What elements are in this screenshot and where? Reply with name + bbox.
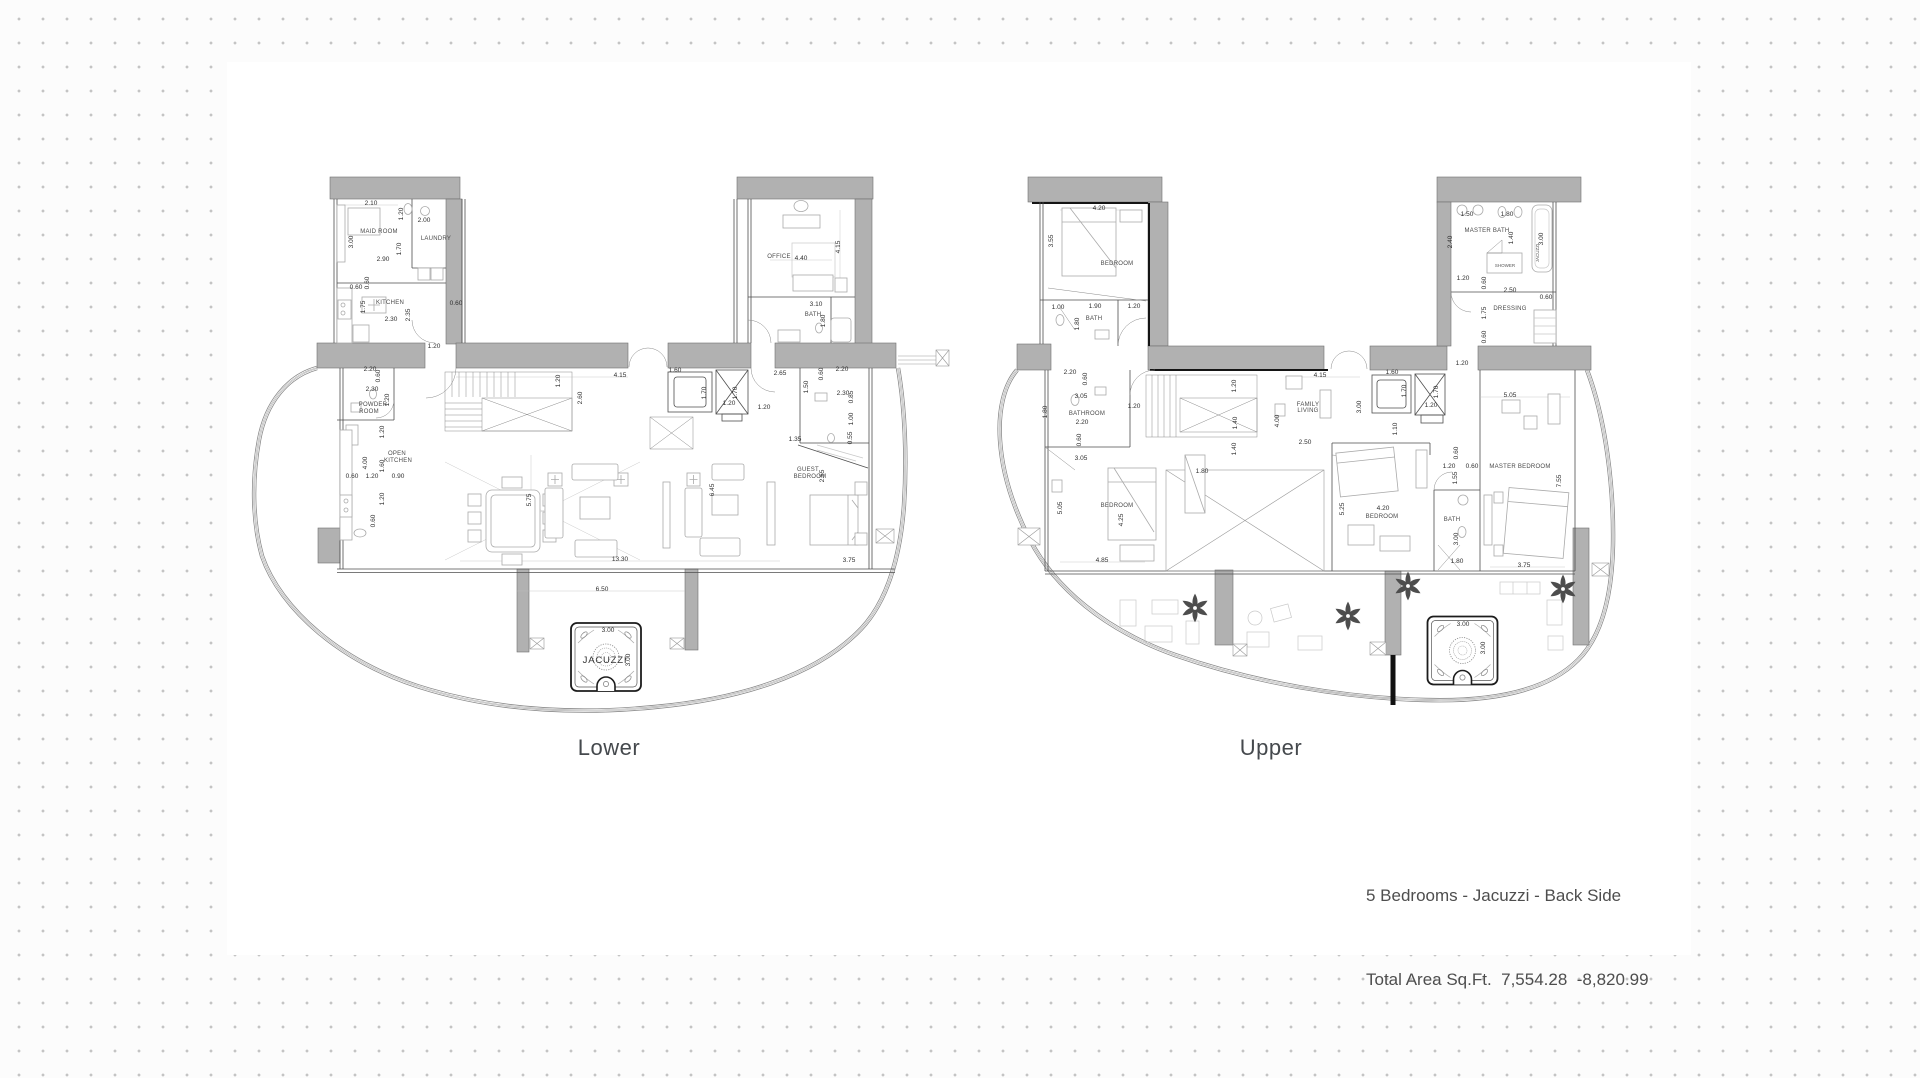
room-label: SHOWER	[1495, 263, 1516, 268]
dimension-label: 1.40	[1231, 442, 1238, 455]
dimension-label: 6.50	[596, 586, 609, 593]
dimension-label: 4.15	[614, 372, 627, 379]
dimension-label: 0.60	[350, 284, 363, 291]
dimension-label: 0.60	[1453, 446, 1460, 459]
caption-area: Total Area Sq.Ft. 7,554.28 -8,820.99	[1366, 966, 1649, 994]
room-label: OFFICE	[767, 254, 791, 260]
room-label: BATH	[1086, 316, 1103, 322]
dimension-label: 1.20	[428, 343, 441, 350]
dimension-label: 1.70	[396, 242, 403, 255]
dimension-label: 1.70	[732, 386, 739, 399]
dimension-label: 1.20	[723, 400, 736, 407]
dimension-label: 1.20	[758, 404, 771, 411]
dimension-label: 1.20	[1128, 403, 1141, 410]
dimension-label: 3.05	[1075, 455, 1088, 462]
plant-icon	[1334, 602, 1362, 631]
room-label: BEDROOM	[1101, 261, 1134, 267]
dimension-label: 3.75	[1518, 562, 1531, 569]
dimension-label: 1.00	[1052, 304, 1065, 311]
dimension-label: 1.70	[1401, 384, 1408, 397]
dimension-label: 1.80	[1196, 468, 1209, 475]
dimension-label: 3.05	[1075, 393, 1088, 400]
dimension-label: 4.25	[1118, 513, 1125, 526]
dimension-label: 1.50	[1461, 211, 1474, 218]
floor-plan-upper: 4.203.55BEDROOM1.001.901.20BATH1.801.501…	[985, 165, 1630, 780]
dimension-label: 3.00	[602, 627, 615, 634]
dimension-label: 0.90	[392, 473, 405, 480]
dimension-label: 4.15	[1314, 372, 1327, 379]
dimension-label: 5.75	[526, 493, 533, 506]
dimension-label: 2.10	[365, 200, 378, 207]
dimension-label: 1.20	[1456, 360, 1469, 367]
dimension-label: 3.55	[1048, 234, 1055, 247]
dimension-label: 3.75	[843, 557, 856, 564]
dimension-label: 1.20	[398, 207, 405, 220]
room-label: OPEN	[388, 451, 406, 457]
page-canvas: 2.101.202.003.00MAID ROOM1.70LAUNDRY2.90…	[0, 0, 1920, 1078]
dimension-label: 1.50	[803, 380, 810, 393]
dimension-label: 4.00	[1274, 414, 1281, 427]
dimension-label: 2.60	[577, 391, 584, 404]
dimension-label: 4.20	[1093, 205, 1106, 212]
dimension-label: 2.20	[1064, 369, 1077, 376]
dimension-label: 1.20	[1425, 402, 1438, 409]
dimension-label: 1.60	[669, 367, 682, 374]
room-label: GUEST	[797, 467, 819, 473]
dimension-label: 4.85	[1096, 557, 1109, 564]
dimension-label: 1.10	[1392, 422, 1399, 435]
dimension-label: 6.45	[709, 483, 716, 496]
dimension-label: 0.60	[1481, 276, 1488, 289]
room-label: BEDROOM	[1101, 503, 1134, 509]
dimension-label: 1.20	[1128, 303, 1141, 310]
dimension-label: 2.00	[418, 217, 431, 224]
plan-caption: 5 Bedrooms - Jacuzzi - Back Side Total A…	[1366, 826, 1649, 1050]
room-label: ROOM	[359, 409, 379, 415]
dimension-label: 1.80	[820, 314, 827, 327]
dimension-label: 1.70	[1433, 385, 1440, 398]
dimension-label: 2.65	[774, 370, 787, 377]
dimension-label: 2.35	[405, 308, 412, 321]
dimension-label: 1.20	[1231, 379, 1238, 392]
dimension-label: 3.00	[1356, 400, 1363, 413]
dimension-label: 1.80	[1501, 211, 1514, 218]
dimension-label: 5.25	[1339, 502, 1346, 515]
dimension-label: 1.90	[1089, 303, 1102, 310]
dimension-label: 2.20	[1076, 419, 1089, 426]
dimension-label: 13.30	[612, 556, 629, 563]
dimension-label: 1.70	[701, 386, 708, 399]
dimension-label: 1.40	[1232, 416, 1239, 429]
room-label: KITCHEN	[376, 300, 404, 306]
dimension-label: 0.60	[375, 369, 382, 382]
dimension-label: 1.20	[379, 425, 386, 438]
dimension-label: 0.60	[1082, 372, 1089, 385]
dimension-label: 0.60	[370, 514, 377, 527]
dimension-label: 2.40	[1447, 235, 1454, 248]
dimension-label: 4.00	[362, 456, 369, 469]
dimension-label: 1.60	[379, 459, 386, 472]
dimension-label: 4.20	[1377, 505, 1390, 512]
room-label: MAID ROOM	[360, 229, 398, 235]
dimension-label: 1.55	[1452, 471, 1459, 484]
room-label: BATH	[805, 312, 822, 318]
caption-title: 5 Bedrooms - Jacuzzi - Back Side	[1366, 882, 1649, 910]
upper-floor-label: Upper	[1240, 735, 1302, 761]
dimension-label: 1.20	[1443, 463, 1456, 470]
dimension-label: 1.20	[555, 374, 562, 387]
room-label: LAUNDRY	[421, 236, 451, 242]
dimension-label: 1.20	[1457, 275, 1470, 282]
room-label: BATH	[1444, 517, 1461, 523]
walls-lower	[317, 177, 896, 652]
dimension-label: 0.60	[346, 473, 359, 480]
dimension-label: 1.00	[848, 412, 855, 425]
dimension-label: 3.00	[1453, 532, 1460, 545]
room-label: DRESSING	[1493, 306, 1526, 312]
dimension-label: 2.55	[819, 469, 826, 482]
dimension-label: 2.50	[1504, 287, 1517, 294]
dimension-label: 2.30	[366, 386, 379, 393]
room-label: KITCHEN	[384, 458, 412, 464]
room-label: MASTER BEDROOM	[1489, 464, 1550, 470]
room-label: BEDROOM	[1366, 514, 1399, 520]
dimension-label: 2.90	[377, 256, 390, 263]
dimension-label: 3.00	[348, 235, 355, 248]
room-label: POWDER	[359, 402, 388, 408]
room-label: BATHROOM	[1069, 411, 1105, 417]
dimension-label: 1.20	[366, 473, 379, 480]
dimension-label: 2.30	[385, 316, 398, 323]
dimension-label: 1.75	[1481, 306, 1488, 319]
room-label: JACUZZI	[1535, 244, 1540, 263]
dimension-label: 0.60	[1466, 463, 1479, 470]
dimension-label: 3.10	[810, 301, 823, 308]
dimension-label: 1.35	[789, 436, 802, 443]
dimension-label: 1.20	[379, 492, 386, 505]
dimension-label: 2.50	[1299, 439, 1312, 446]
room-label: MASTER BATH	[1465, 228, 1510, 234]
dimension-label: 0.60	[1481, 330, 1488, 343]
dimension-label: 1.80	[1042, 405, 1049, 418]
dimension-label: 7.55	[1556, 474, 1563, 487]
dimension-label: 1.40	[1508, 231, 1515, 244]
plant-icon	[1181, 594, 1209, 623]
dimension-label: 3.00	[1457, 621, 1470, 628]
dimension-label: 2.20	[836, 366, 849, 373]
terrace-wall-black	[1391, 655, 1396, 705]
dimension-label: 0.60	[450, 300, 463, 307]
labels-upper: 4.203.55BEDROOM1.001.901.20BATH1.801.501…	[1042, 205, 1563, 654]
room-label: LIVING	[1297, 408, 1318, 414]
dimension-label: 5.05	[1504, 392, 1517, 399]
dimension-label: 0.60	[364, 276, 371, 289]
dimension-label: 0.55	[847, 431, 854, 444]
furniture-upper	[1052, 208, 1569, 650]
dimension-label: 3.00	[1480, 641, 1487, 654]
dimension-label: 1.60	[1386, 369, 1399, 376]
dimension-label: 0.85	[848, 390, 855, 403]
dimension-label: 0.60	[818, 367, 825, 380]
dimension-label: 1.75	[360, 300, 367, 313]
dimension-label: 0.60	[1540, 294, 1553, 301]
lower-floor-label: Lower	[578, 735, 640, 761]
dimension-label: 5.05	[1057, 501, 1064, 514]
dimension-label: 4.15	[835, 240, 842, 253]
dimension-label: 1.80	[1074, 317, 1081, 330]
dimension-label: 3.00	[1538, 232, 1545, 245]
plants-upper	[1181, 572, 1577, 631]
room-label: JACUZZI	[583, 655, 628, 666]
dimension-label: 1.80	[1451, 558, 1464, 565]
dimension-label: 4.40	[795, 255, 808, 262]
dimension-label: 0.60	[1076, 433, 1083, 446]
plant-icon	[1549, 575, 1577, 604]
floor-plan-lower: 2.101.202.003.00MAID ROOM1.70LAUNDRY2.90…	[250, 165, 950, 780]
